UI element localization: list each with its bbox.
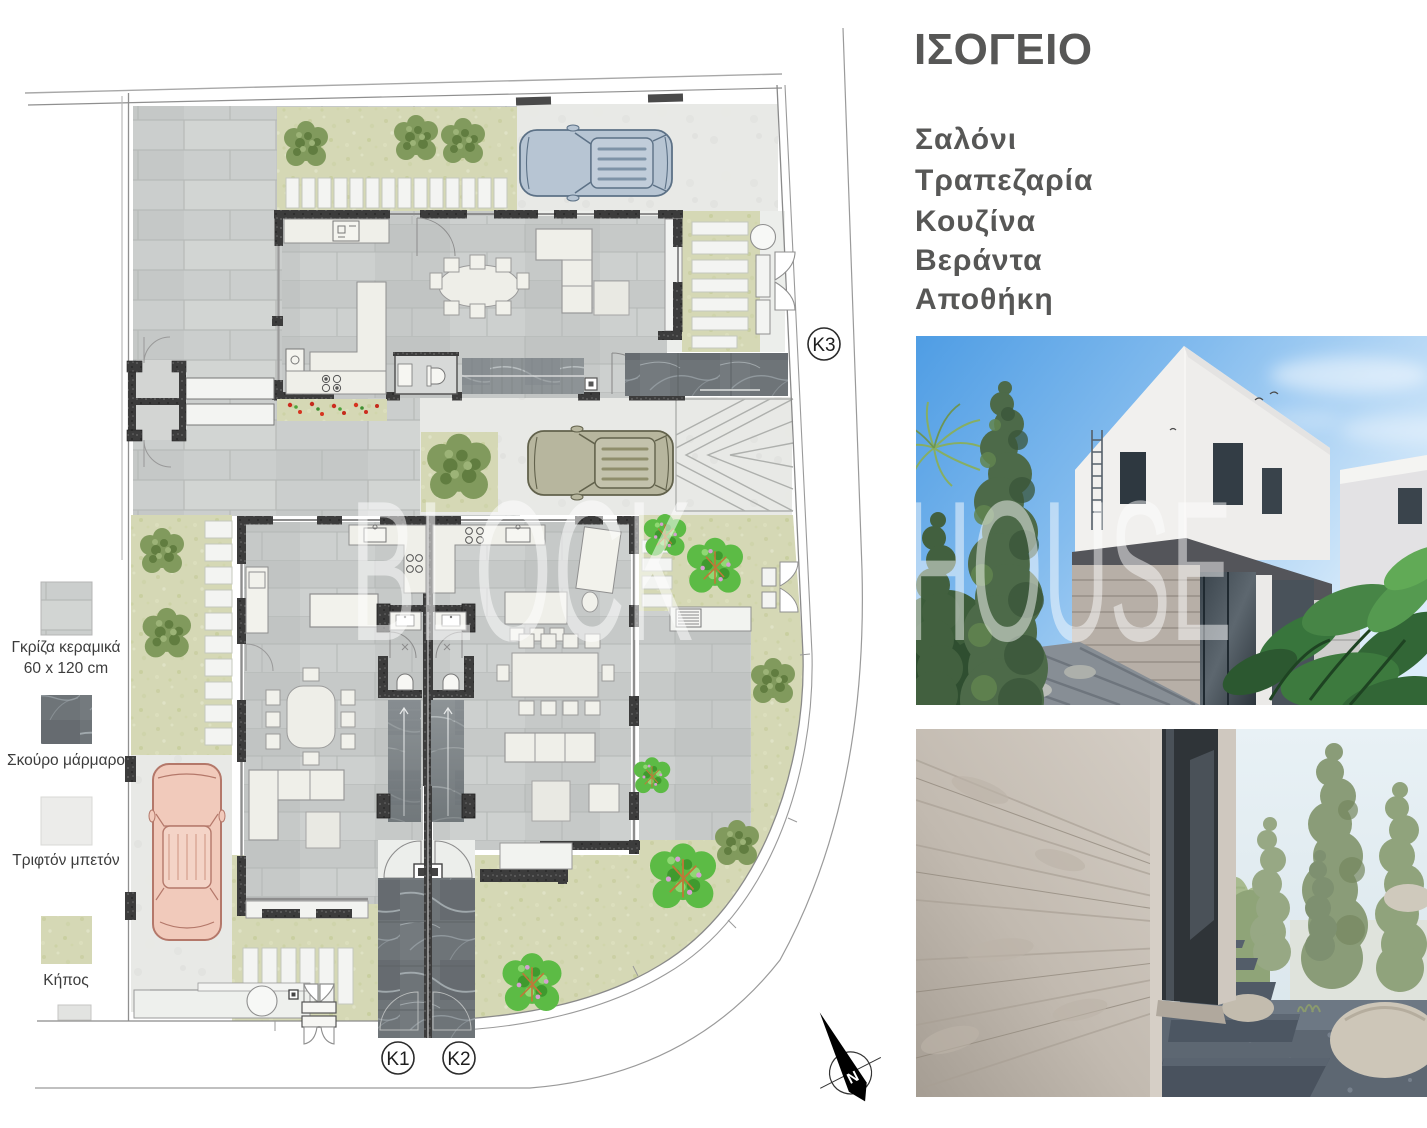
svg-text:Τριφτόν μπετόν: Τριφτόν μπετόν [12,852,120,869]
svg-text:Γκρίζα κεραμικά: Γκρίζα κεραμικά [12,639,121,656]
svg-text:Αποθήκη: Αποθήκη [915,283,1054,316]
svg-text:K1: K1 [386,1049,409,1070]
svg-text:Σαλόνι: Σαλόνι [915,123,1017,156]
svg-text:Βεράντα: Βεράντα [915,244,1043,277]
svg-text:Τραπεζαρία: Τραπεζαρία [915,164,1093,197]
svg-text:BLOCK: BLOCK [350,459,694,683]
svg-text:K2: K2 [447,1049,470,1070]
svg-text:HOUSE: HOUSE [905,459,1232,683]
svg-text:Κήπος: Κήπος [43,972,89,989]
svg-text:K3: K3 [812,335,835,356]
svg-text:Σκούρο μάρμαρο: Σκούρο μάρμαρο [7,752,125,769]
svg-text:ΙΣΟΓΕΙΟ: ΙΣΟΓΕΙΟ [914,25,1093,74]
svg-text:Κουζίνα: Κουζίνα [915,205,1036,238]
svg-text:60 x 120 cm: 60 x 120 cm [24,660,108,677]
